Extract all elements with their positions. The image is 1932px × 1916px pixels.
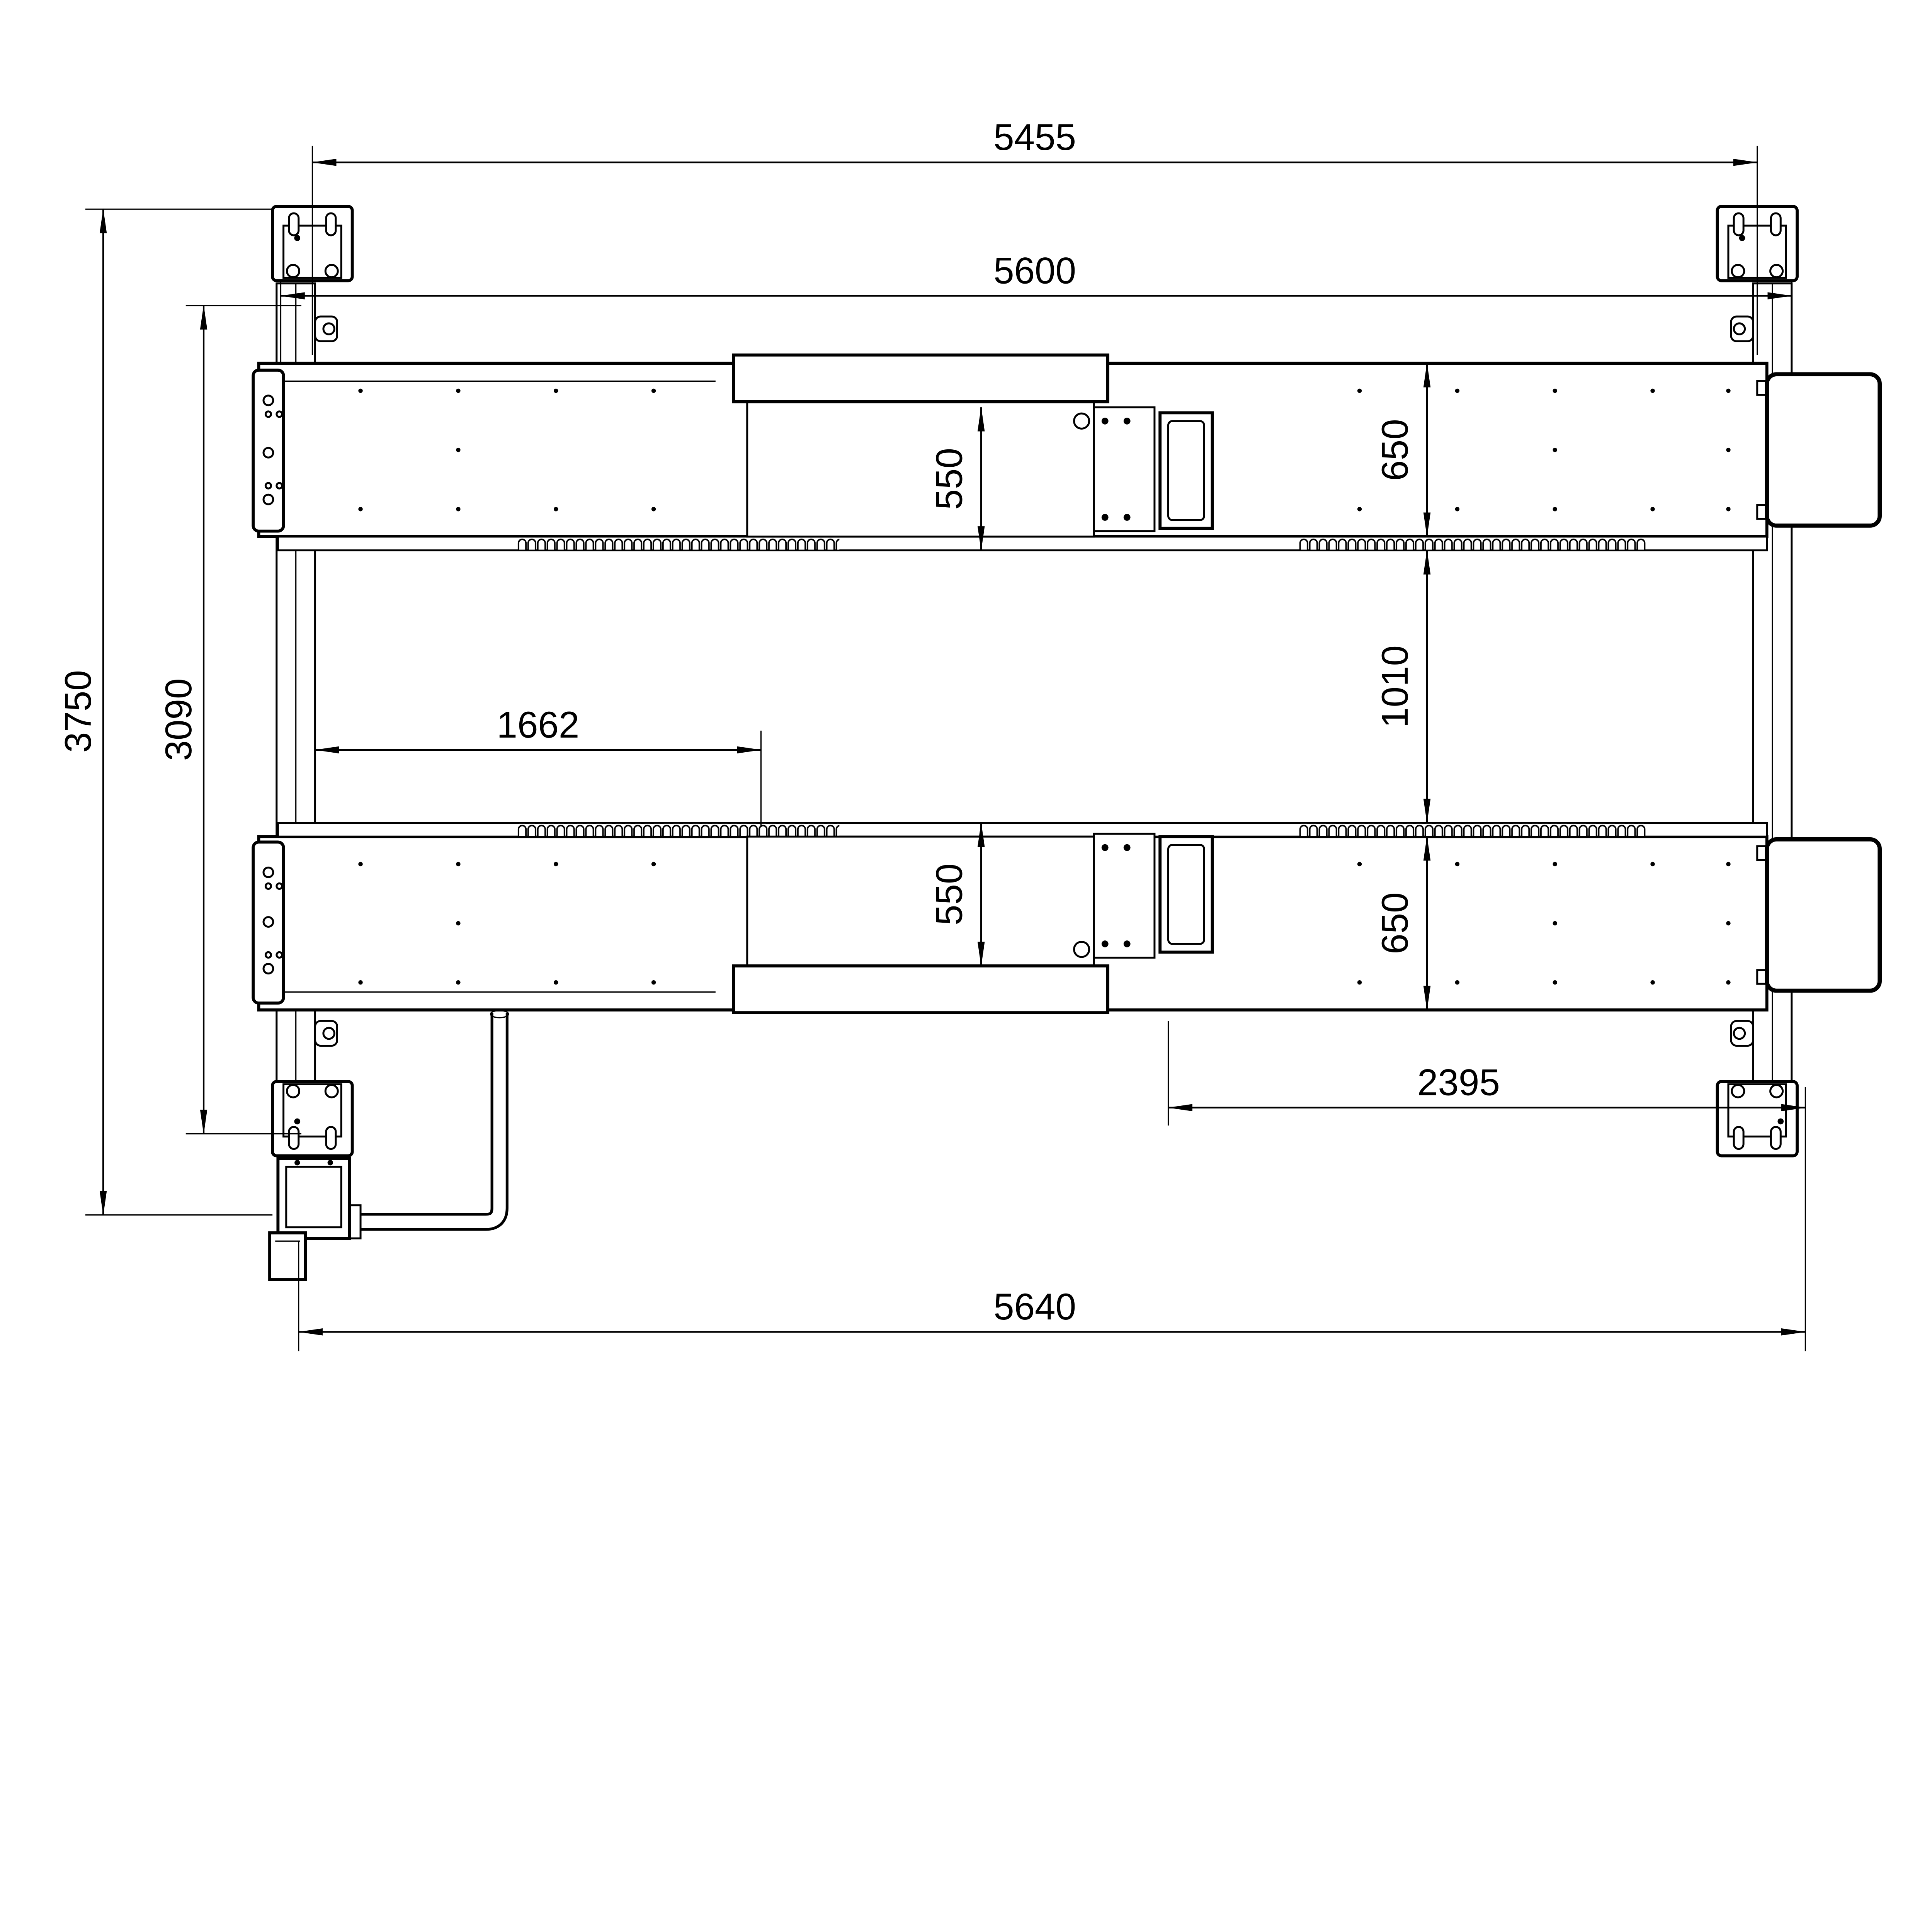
end-cap-plate-top-left (253, 370, 283, 531)
dim-label-550-bottom: 550 (929, 864, 970, 925)
end-cap-plate-bottom-left (253, 842, 283, 1003)
dimension-1662: 1662 (315, 704, 761, 827)
dim-label-2395: 2395 (1417, 1062, 1500, 1103)
lift-plan-drawing: 5455 5600 3750 3090 1662 550 650 1010 65… (0, 0, 1932, 1365)
approach-ramp-bottom (1757, 839, 1880, 991)
dim-label-650-bottom: 650 (1374, 892, 1416, 954)
base-plate-bottom-right (1717, 1081, 1797, 1156)
dimension-5600: 5600 (281, 250, 1792, 364)
dimension-5455: 5455 (312, 117, 1757, 355)
approach-ramp-top (1757, 374, 1880, 526)
locking-rack-bottom-right (1299, 823, 1646, 836)
locking-rack-top-left (517, 537, 839, 550)
dim-label-5455: 5455 (993, 117, 1076, 158)
dim-label-5600: 5600 (993, 250, 1076, 292)
page: 5455 5600 3750 3090 1662 550 650 1010 65… (0, 0, 1932, 1365)
dim-label-5640: 5640 (993, 1286, 1076, 1328)
dim-label-3750: 3750 (58, 670, 99, 753)
dim-label-3090: 3090 (158, 678, 199, 761)
power-unit (270, 1159, 350, 1280)
dimension-5640: 5640 (299, 1241, 1806, 1351)
dimension-2395: 2395 (1168, 1021, 1806, 1351)
dim-label-1662: 1662 (497, 704, 580, 746)
runway-top (253, 355, 1879, 551)
locking-rack-top-right (1299, 537, 1646, 550)
dimension-1010: 1010 (1374, 550, 1427, 823)
dim-label-550-top: 550 (929, 448, 970, 510)
base-plate-bottom-left (272, 1081, 352, 1156)
dim-label-1010: 1010 (1374, 645, 1416, 728)
dim-label-650-top: 650 (1374, 419, 1416, 481)
runway-bottom (253, 823, 1879, 1013)
hydraulic-pipe (344, 1010, 509, 1238)
locking-rack-bottom-left (517, 823, 839, 836)
